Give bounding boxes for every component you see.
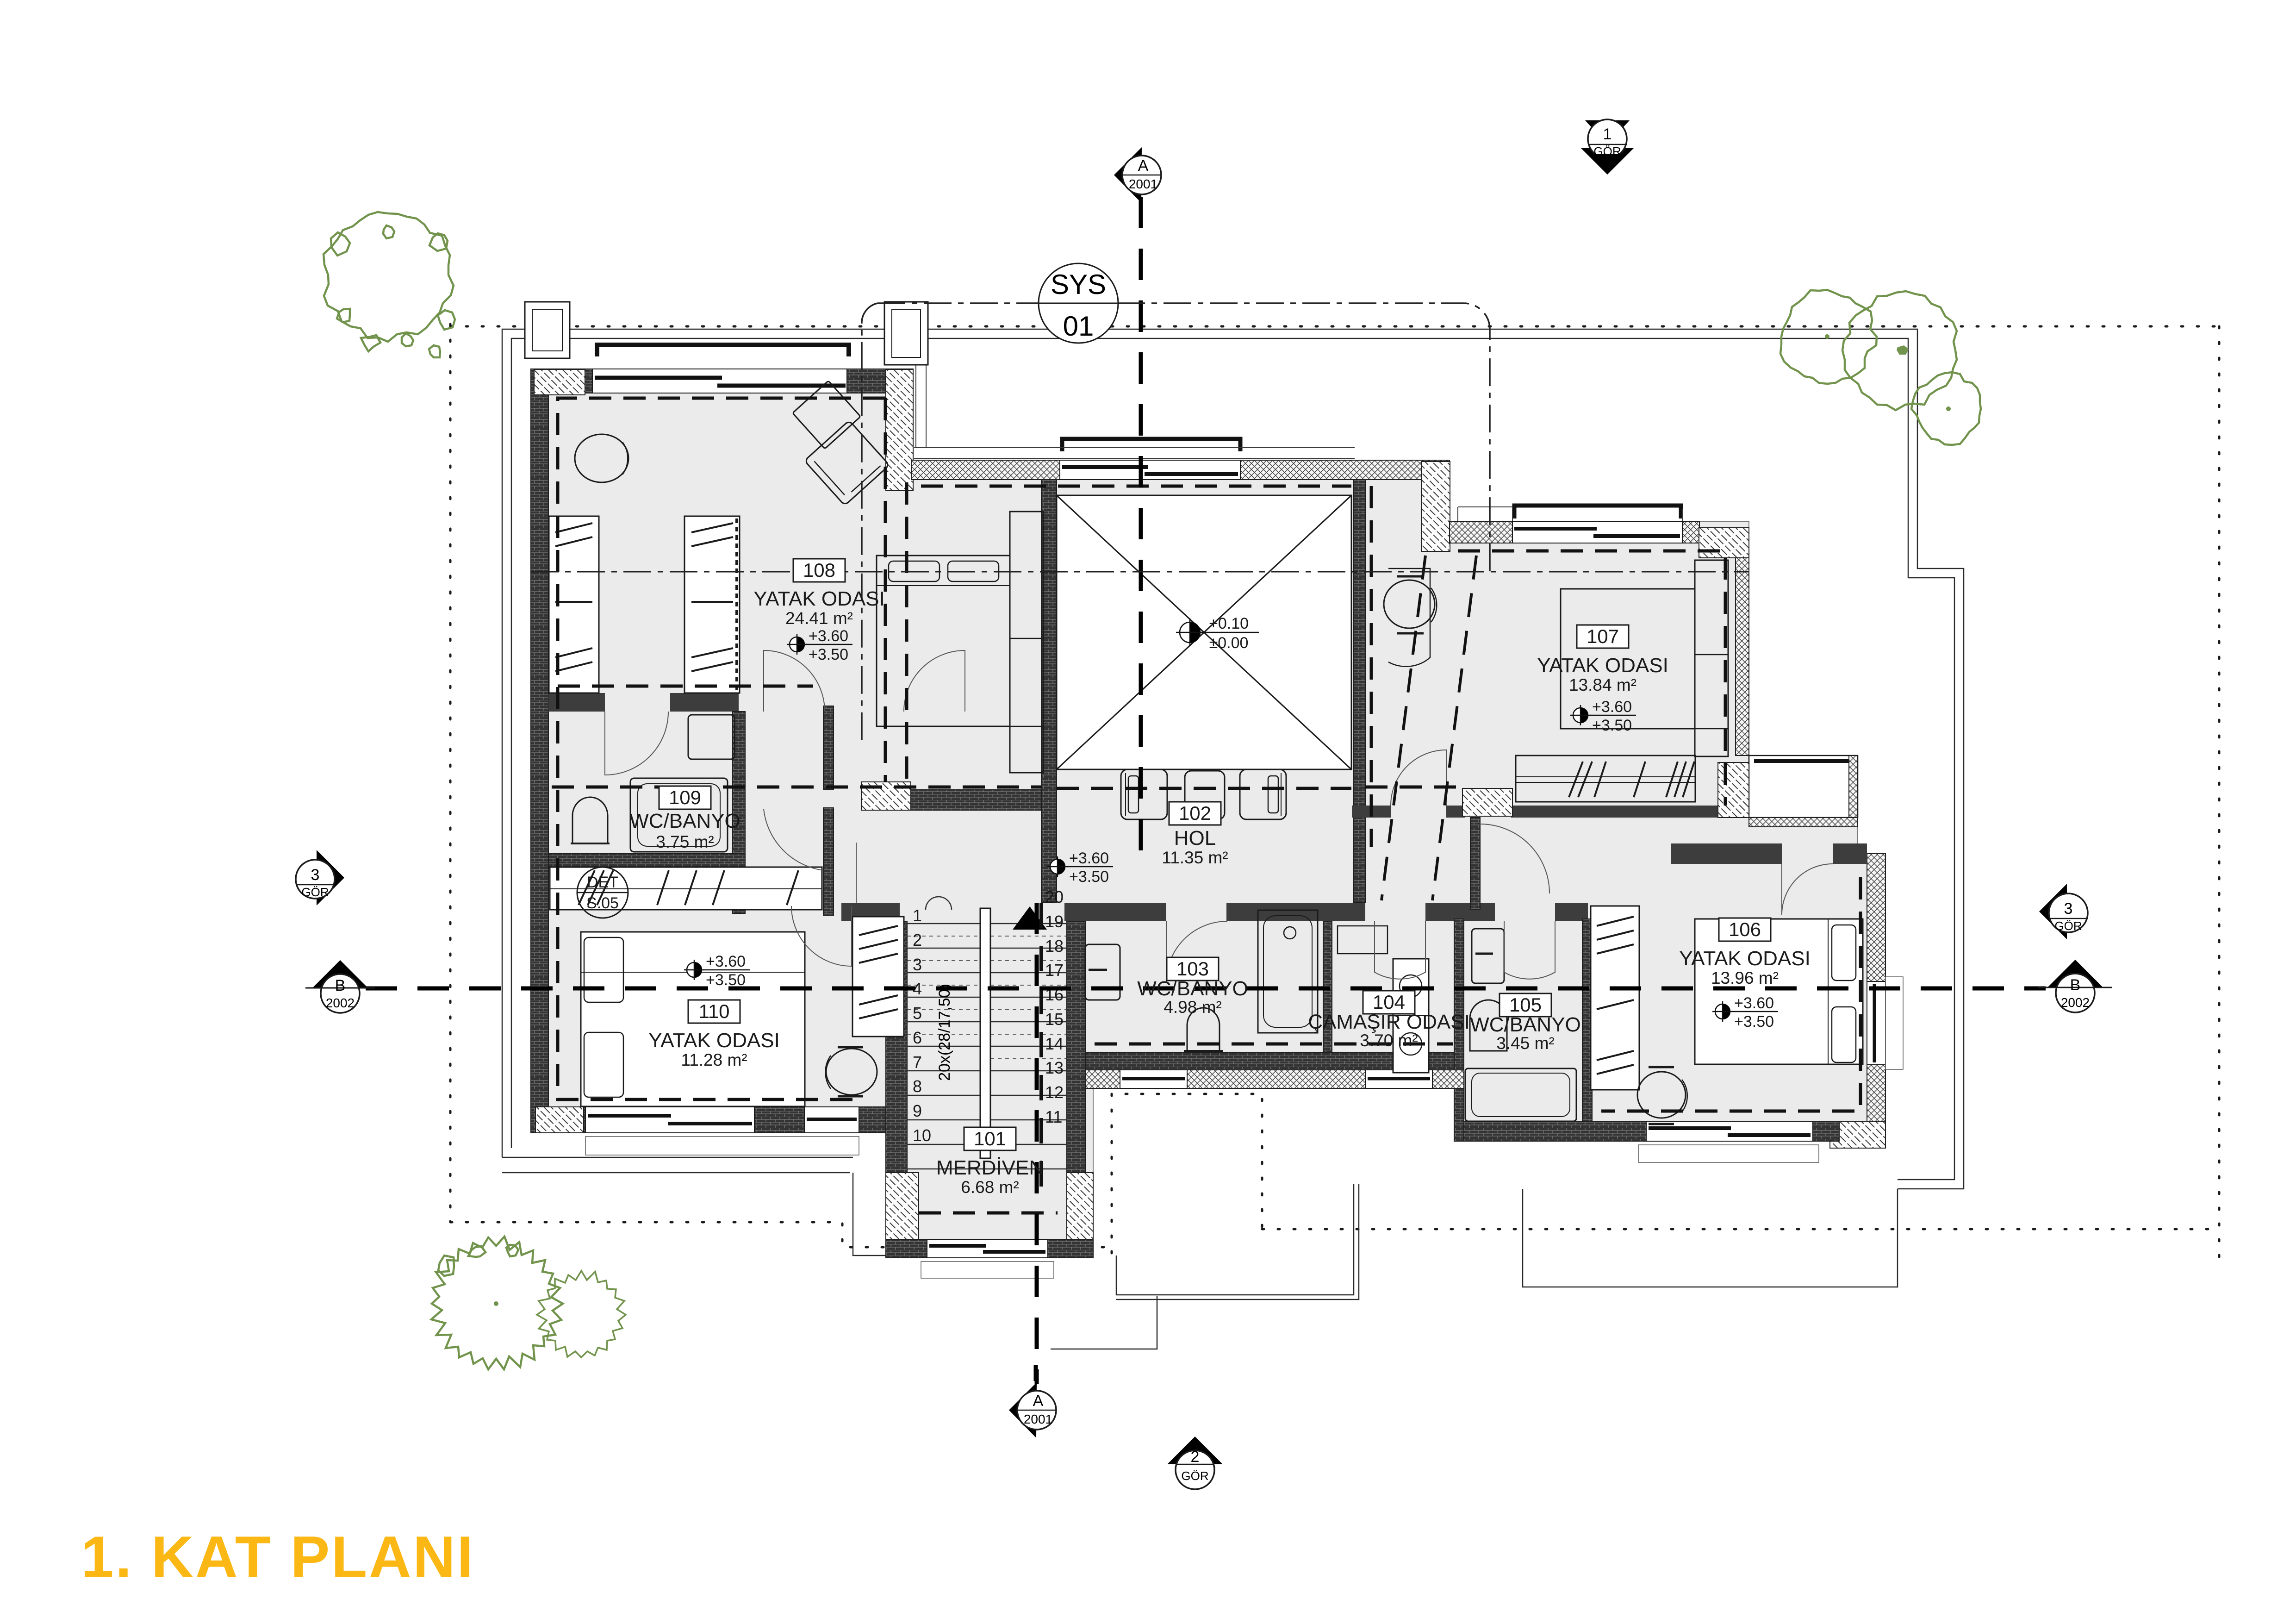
svg-text:17: 17	[1045, 961, 1064, 980]
svg-text:3.75 m²: 3.75 m²	[656, 832, 714, 851]
svg-text:WC/BANYO: WC/BANYO	[1470, 1013, 1581, 1036]
svg-text:A: A	[1033, 1392, 1044, 1410]
svg-text:+3.50: +3.50	[809, 646, 848, 663]
svg-text:2: 2	[1191, 1448, 1200, 1466]
svg-text:YATAK ODASI: YATAK ODASI	[1537, 654, 1668, 677]
svg-text:24.41 m²: 24.41 m²	[785, 609, 853, 628]
svg-text:2001: 2001	[1024, 1412, 1052, 1426]
svg-text:11.28 m²: 11.28 m²	[681, 1050, 747, 1069]
svg-text:YATAK ODASI: YATAK ODASI	[753, 587, 885, 610]
svg-text:7: 7	[913, 1053, 922, 1072]
svg-text:WC/BANYO: WC/BANYO	[629, 810, 740, 832]
svg-text:GÖR: GÖR	[2054, 919, 2082, 933]
svg-text:11: 11	[1045, 1107, 1062, 1126]
svg-text:B: B	[335, 977, 346, 994]
svg-text:1: 1	[1603, 125, 1612, 143]
svg-text:20: 20	[1045, 887, 1064, 906]
svg-text:YATAK ODASI: YATAK ODASI	[648, 1029, 780, 1052]
svg-text:B: B	[2070, 976, 2081, 994]
svg-text:+3.50: +3.50	[1069, 868, 1109, 886]
svg-text:9: 9	[913, 1101, 922, 1120]
svg-text:+3.50: +3.50	[706, 971, 746, 989]
svg-text:13.84 m²: 13.84 m²	[1569, 675, 1636, 694]
svg-text:01: 01	[1063, 311, 1094, 342]
svg-text:12: 12	[1045, 1083, 1064, 1102]
svg-text:GÖR: GÖR	[1181, 1469, 1208, 1483]
svg-text:101: 101	[974, 1128, 1006, 1149]
svg-text:GÖR: GÖR	[301, 885, 329, 899]
svg-text:2: 2	[913, 931, 922, 949]
svg-text:10: 10	[913, 1126, 931, 1145]
svg-text:106: 106	[1729, 918, 1761, 940]
svg-text:3: 3	[913, 955, 922, 974]
svg-text:+3.60: +3.60	[706, 953, 746, 970]
svg-text:3: 3	[311, 866, 320, 884]
svg-text:109: 109	[669, 787, 701, 808]
svg-text:11.35 m²: 11.35 m²	[1162, 848, 1228, 867]
svg-text:GÖR: GÖR	[1593, 144, 1621, 158]
svg-text:1: 1	[913, 906, 922, 925]
svg-text:13: 13	[1045, 1058, 1064, 1077]
svg-text:110: 110	[699, 1000, 730, 1022]
svg-text:+3.60: +3.60	[1734, 994, 1774, 1012]
svg-text:+3.50: +3.50	[1592, 717, 1632, 734]
svg-text:19: 19	[1045, 912, 1064, 931]
svg-text:S.05: S.05	[586, 894, 619, 912]
svg-text:2002: 2002	[2061, 995, 2090, 1010]
svg-text:8: 8	[913, 1077, 922, 1096]
svg-text:SYS: SYS	[1051, 269, 1106, 300]
svg-text:4.98 m²: 4.98 m²	[1164, 998, 1221, 1017]
svg-text:108: 108	[803, 559, 835, 581]
svg-text:104: 104	[1373, 991, 1405, 1013]
svg-text:3: 3	[2064, 900, 2073, 918]
svg-text:18: 18	[1045, 937, 1064, 956]
svg-text:A: A	[1138, 157, 1149, 175]
svg-text:3.70 m²: 3.70 m²	[1360, 1031, 1418, 1050]
svg-text:MERDİVEN: MERDİVEN	[936, 1156, 1044, 1179]
svg-text:15: 15	[1045, 1010, 1064, 1029]
svg-text:1. KAT PLANI: 1. KAT PLANI	[81, 1524, 475, 1590]
svg-text:107: 107	[1587, 625, 1619, 647]
svg-text:3.45 m²: 3.45 m²	[1496, 1034, 1554, 1053]
svg-text:YATAK ODASI: YATAK ODASI	[1679, 947, 1811, 970]
svg-text:+3.60: +3.60	[1592, 698, 1632, 716]
svg-text:2001: 2001	[1129, 177, 1157, 191]
svg-text:DET: DET	[587, 874, 618, 891]
svg-text:102: 102	[1179, 802, 1211, 824]
svg-text:+3.60: +3.60	[1069, 849, 1109, 867]
svg-text:ÇAMAŞIR ODASI: ÇAMAŞIR ODASI	[1308, 1011, 1470, 1033]
svg-text:HOL: HOL	[1174, 827, 1216, 849]
svg-text:13.96 m²: 13.96 m²	[1711, 968, 1779, 987]
svg-text:6.68 m²: 6.68 m²	[961, 1178, 1019, 1197]
svg-text:±0.00: ±0.00	[1209, 634, 1249, 652]
svg-text:WC/BANYO: WC/BANYO	[1137, 977, 1248, 1000]
svg-text:14: 14	[1045, 1034, 1064, 1053]
svg-text:6: 6	[913, 1028, 922, 1047]
svg-text:+3.60: +3.60	[809, 627, 848, 645]
svg-text:2002: 2002	[326, 996, 355, 1010]
svg-text:103: 103	[1176, 958, 1209, 980]
svg-text:5: 5	[913, 1004, 922, 1023]
svg-text:105: 105	[1509, 994, 1542, 1016]
svg-text:+3.50: +3.50	[1734, 1013, 1774, 1031]
svg-text:+0.10: +0.10	[1209, 615, 1249, 632]
svg-text:20x(28/17,50): 20x(28/17,50)	[936, 984, 953, 1081]
